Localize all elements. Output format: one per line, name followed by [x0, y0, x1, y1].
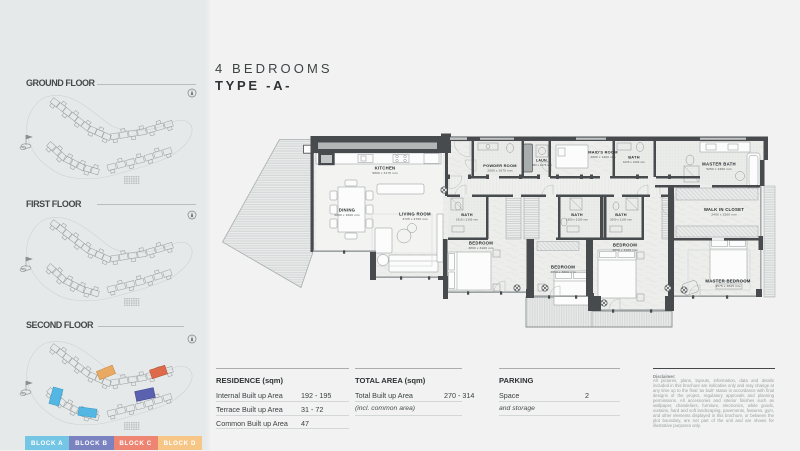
svg-text:2600 x 1200 mm: 2600 x 1200 mm [590, 155, 615, 159]
svg-text:1910 x 2100 mm: 1910 x 2100 mm [456, 218, 479, 222]
svg-text:2000 x 1675 mm: 2000 x 1675 mm [487, 169, 512, 173]
svg-text:2400 x 2200 mm: 2400 x 2200 mm [711, 213, 736, 217]
svg-text:LIVING ROOM: LIVING ROOM [399, 212, 431, 217]
svg-text:DINING: DINING [339, 208, 356, 213]
svg-text:LAUN.: LAUN. [536, 159, 548, 163]
svg-text:MAID'S ROOM: MAID'S ROOM [588, 150, 617, 155]
svg-text:BEDROOM: BEDROOM [613, 243, 637, 248]
svg-text:3800 x 3100 mm: 3800 x 3100 mm [468, 246, 493, 250]
svg-text:4575 x 3525 mm: 4575 x 3525 mm [715, 284, 740, 288]
svg-text:POWDER ROOM: POWDER ROOM [483, 163, 516, 168]
svg-text:1025 x 1600 mm: 1025 x 1600 mm [623, 160, 646, 164]
svg-text:950 x 1675 mm: 950 x 1675 mm [532, 163, 552, 167]
svg-text:1950 x 2100 mm: 1950 x 2100 mm [566, 218, 589, 222]
svg-text:BATH: BATH [628, 155, 640, 160]
svg-text:2000 x 2100 mm: 2000 x 2100 mm [610, 218, 633, 222]
svg-text:BATH: BATH [615, 212, 627, 217]
svg-text:MASTER BEDROOM: MASTER BEDROOM [705, 279, 750, 284]
svg-text:5250 x 2400 mm: 5250 x 2400 mm [706, 167, 731, 171]
svg-text:BEDROOM: BEDROOM [551, 265, 575, 270]
svg-text:3725 x 4700 mm: 3725 x 4700 mm [402, 217, 427, 221]
svg-text:3800 x 3100 mm: 3800 x 3100 mm [612, 248, 637, 252]
svg-text:5800 x 3175 mm: 5800 x 3175 mm [372, 171, 397, 175]
svg-text:MASTER BATH: MASTER BATH [702, 162, 736, 167]
svg-text:WALK IN CLOSET: WALK IN CLOSET [704, 207, 744, 212]
svg-text:KITCHEN: KITCHEN [375, 166, 396, 171]
svg-text:3800 x 3600 mm: 3800 x 3600 mm [550, 270, 575, 274]
svg-text:BEDROOM: BEDROOM [469, 241, 493, 246]
svg-text:BATH: BATH [461, 212, 473, 217]
svg-text:BATH: BATH [571, 212, 583, 217]
svg-text:2800 x 1600 mm: 2800 x 1600 mm [334, 213, 359, 217]
